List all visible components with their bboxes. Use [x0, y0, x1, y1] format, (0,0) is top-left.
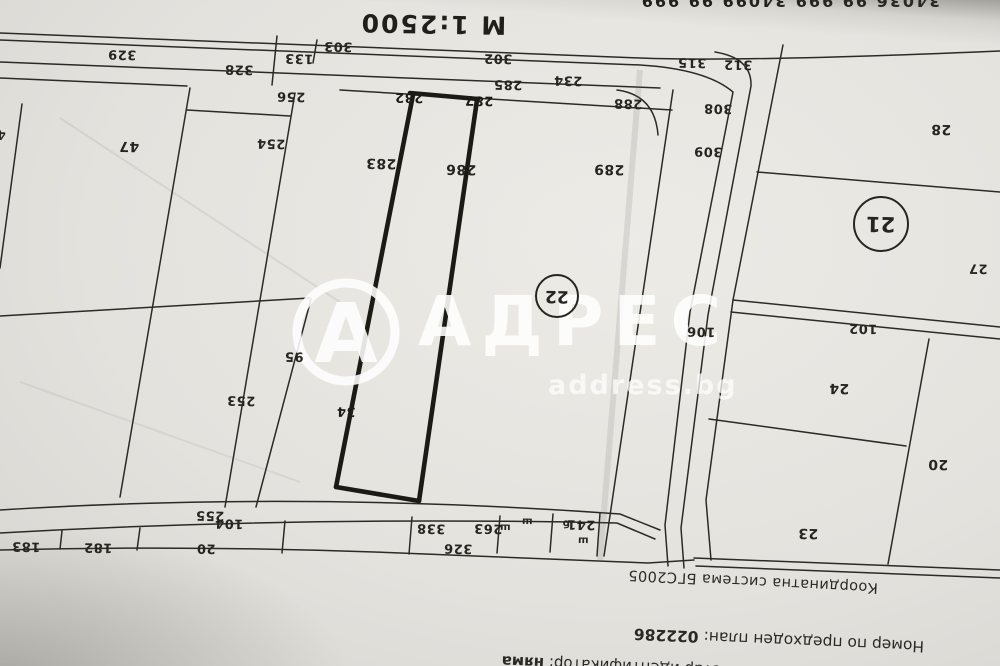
adres-logo-icon: А	[288, 274, 404, 390]
parcel-label: 329	[108, 46, 137, 61]
parcel-label: 102	[849, 320, 878, 335]
terrain-mark: ш	[521, 515, 532, 526]
parcel-label: 182	[84, 539, 113, 554]
parcel-label: 47	[119, 138, 140, 154]
parcel-label: 309	[694, 143, 723, 158]
parcel-label: 133	[285, 50, 314, 65]
cadastral-plan-photo: А АДРЕС address.bg 22 21 329 328 133 303…	[0, 0, 1000, 666]
parcel-label: 20	[196, 540, 215, 555]
terrain-mark: ш	[499, 521, 510, 532]
parcel-label: 106	[687, 323, 716, 338]
parcel-label: 289	[593, 161, 624, 178]
map-scale-text: М 1:2500	[359, 8, 506, 40]
parcel-label: 263	[474, 520, 503, 535]
parcel-label: 308	[704, 100, 733, 115]
parcel-label: 256	[277, 88, 306, 103]
parcel-label: 338	[417, 520, 446, 535]
parcel-label: 20	[928, 456, 949, 472]
parcel-label: 4	[0, 126, 6, 141]
parcel-label: 287	[465, 92, 494, 107]
parcel-label: 183	[12, 538, 41, 553]
parcel-label: 282	[395, 89, 424, 104]
terrain-mark: б	[562, 517, 570, 528]
parcel-label: 23	[798, 525, 819, 541]
parcel-label: 303	[324, 38, 353, 53]
top-edge-cut-text: 34036 99 999 34099 99 999	[640, 0, 941, 11]
watermark-domain: address.bg	[548, 370, 738, 401]
parcel-label: 24	[829, 380, 850, 396]
parcel-label: 241	[567, 516, 596, 531]
parcel-label: 286	[445, 161, 476, 178]
parcel-label: 254	[257, 135, 286, 150]
circled-block-number-21: 21	[853, 196, 909, 252]
parcel-label: 34	[336, 403, 355, 418]
parcel-label: 328	[225, 61, 254, 76]
parcel-label: 234	[554, 72, 583, 87]
terrain-mark: ш	[577, 534, 588, 545]
parcel-label: 104	[215, 515, 244, 530]
parcel-label: 285	[494, 76, 523, 91]
parcel-label: 28	[931, 121, 952, 137]
parcel-label: 288	[614, 95, 643, 110]
parcel-label: 302	[484, 50, 513, 65]
adres-logo-letter: А	[314, 287, 378, 382]
parcel-label: 312	[724, 56, 753, 71]
parcel-label: 27	[968, 260, 987, 275]
parcel-label: 326	[444, 540, 473, 555]
parcel-label: 283	[365, 155, 396, 172]
parcel-label: 315	[678, 54, 707, 69]
parcel-label: 95	[284, 348, 303, 363]
circled-block-number-22: 22	[535, 274, 579, 318]
previous-plan-number: 022286	[634, 625, 699, 646]
old-identifier-value: няма	[501, 652, 544, 666]
parcel-label: 253	[227, 392, 256, 407]
